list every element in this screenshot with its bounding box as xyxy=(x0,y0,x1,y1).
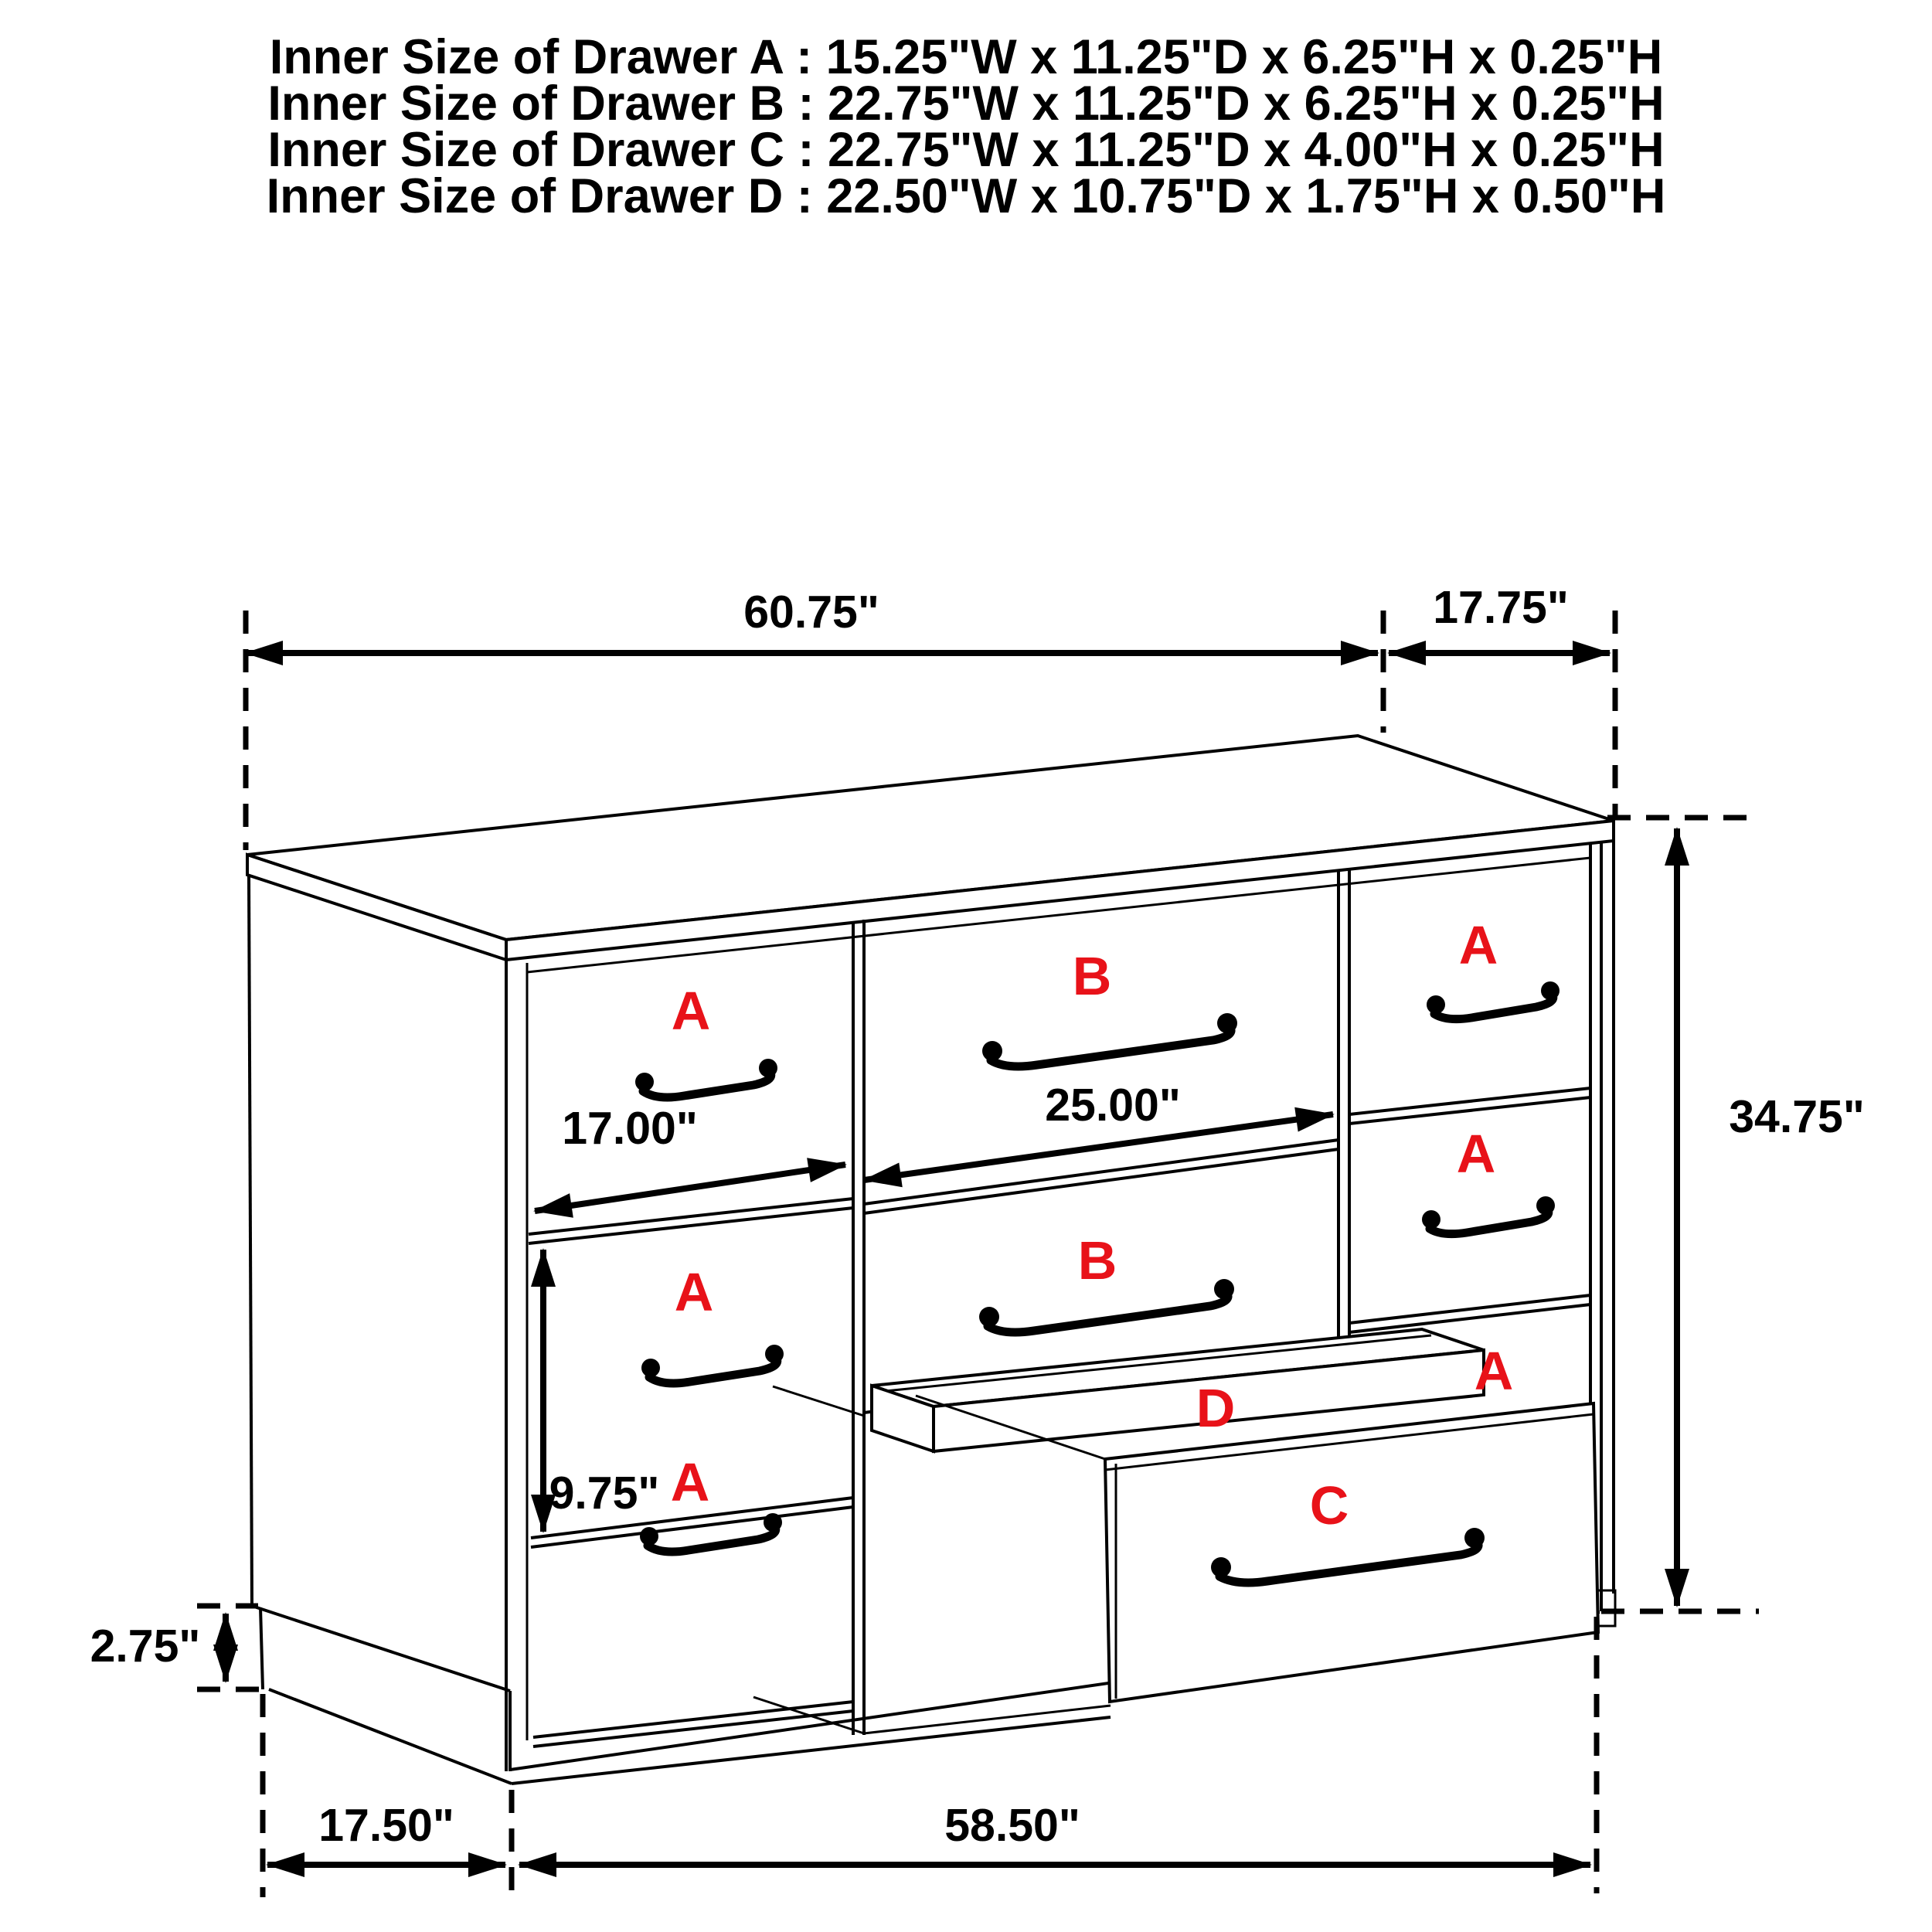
drawer-c-label: C xyxy=(1310,1475,1349,1536)
dresser-drawing: D C A A A B B A A A xyxy=(247,736,1615,1784)
dim-label-top-depth: 17.75" xyxy=(1433,582,1569,633)
dim-label-left-opening-width: 17.00" xyxy=(562,1103,698,1154)
drawer-a2-left-handle xyxy=(641,1345,784,1383)
drawer-c-front-face xyxy=(1105,1403,1598,1702)
drawer-a1-right-handle xyxy=(1427,981,1560,1019)
middle-opening-sill xyxy=(864,1706,1111,1733)
dim-label-bottom-depth: 17.50" xyxy=(318,1800,454,1851)
drawer-a3-right-label: A xyxy=(1475,1341,1514,1401)
tray-d-label: D xyxy=(1196,1378,1236,1438)
title-block: Inner Size of Drawer A : 15.25"W x 11.25… xyxy=(267,30,1666,223)
dim-label-base-height: 2.75" xyxy=(90,1621,201,1672)
base-left-step xyxy=(260,1607,263,1689)
left-row-bottom-a xyxy=(533,1702,853,1737)
diagram-canvas: Inner Size of Drawer A : 15.25"W x 11.25… xyxy=(0,0,1932,1932)
drawer-b1-handle xyxy=(982,1013,1237,1066)
middle-row-divider-1b xyxy=(864,1149,1338,1213)
drawer-a2-left-label: A xyxy=(675,1262,714,1322)
drawer-a3-left-label: A xyxy=(671,1452,710,1512)
title-line-4: Inner Size of Drawer D : 22.50"W x 10.75… xyxy=(267,169,1666,223)
drawer-a1-right-label: A xyxy=(1459,915,1498,975)
drawer-a2-right-handle xyxy=(1422,1196,1555,1234)
drawer-a2-right-label: A xyxy=(1457,1124,1496,1184)
left-row-divider-1b xyxy=(529,1208,853,1243)
opening-depth-line-top xyxy=(773,1386,864,1416)
dim-label-middle-opening-width: 25.00" xyxy=(1045,1080,1181,1131)
side-panel-back-edge xyxy=(249,875,252,1606)
drawer-b1-label: B xyxy=(1073,946,1112,1006)
dim-label-top-width: 60.75" xyxy=(743,587,879,638)
side-panel-bottom-edge xyxy=(252,1606,510,1691)
drawer-a1-left-handle xyxy=(635,1059,777,1097)
drawer-b2-label: B xyxy=(1078,1230,1117,1291)
base-bottom-left-edge xyxy=(269,1689,512,1784)
furniture-dimension-diagram: Inner Size of Drawer A : 15.25"W x 11.25… xyxy=(0,0,1932,1932)
left-row-bottom-b xyxy=(533,1711,853,1747)
dim-label-height: 34.75" xyxy=(1729,1091,1865,1142)
dim-label-bottom-width: 58.50" xyxy=(944,1800,1080,1851)
drawer-a1-left-label: A xyxy=(672,981,711,1041)
dim-label-left-opening-height: 9.75" xyxy=(549,1468,660,1519)
